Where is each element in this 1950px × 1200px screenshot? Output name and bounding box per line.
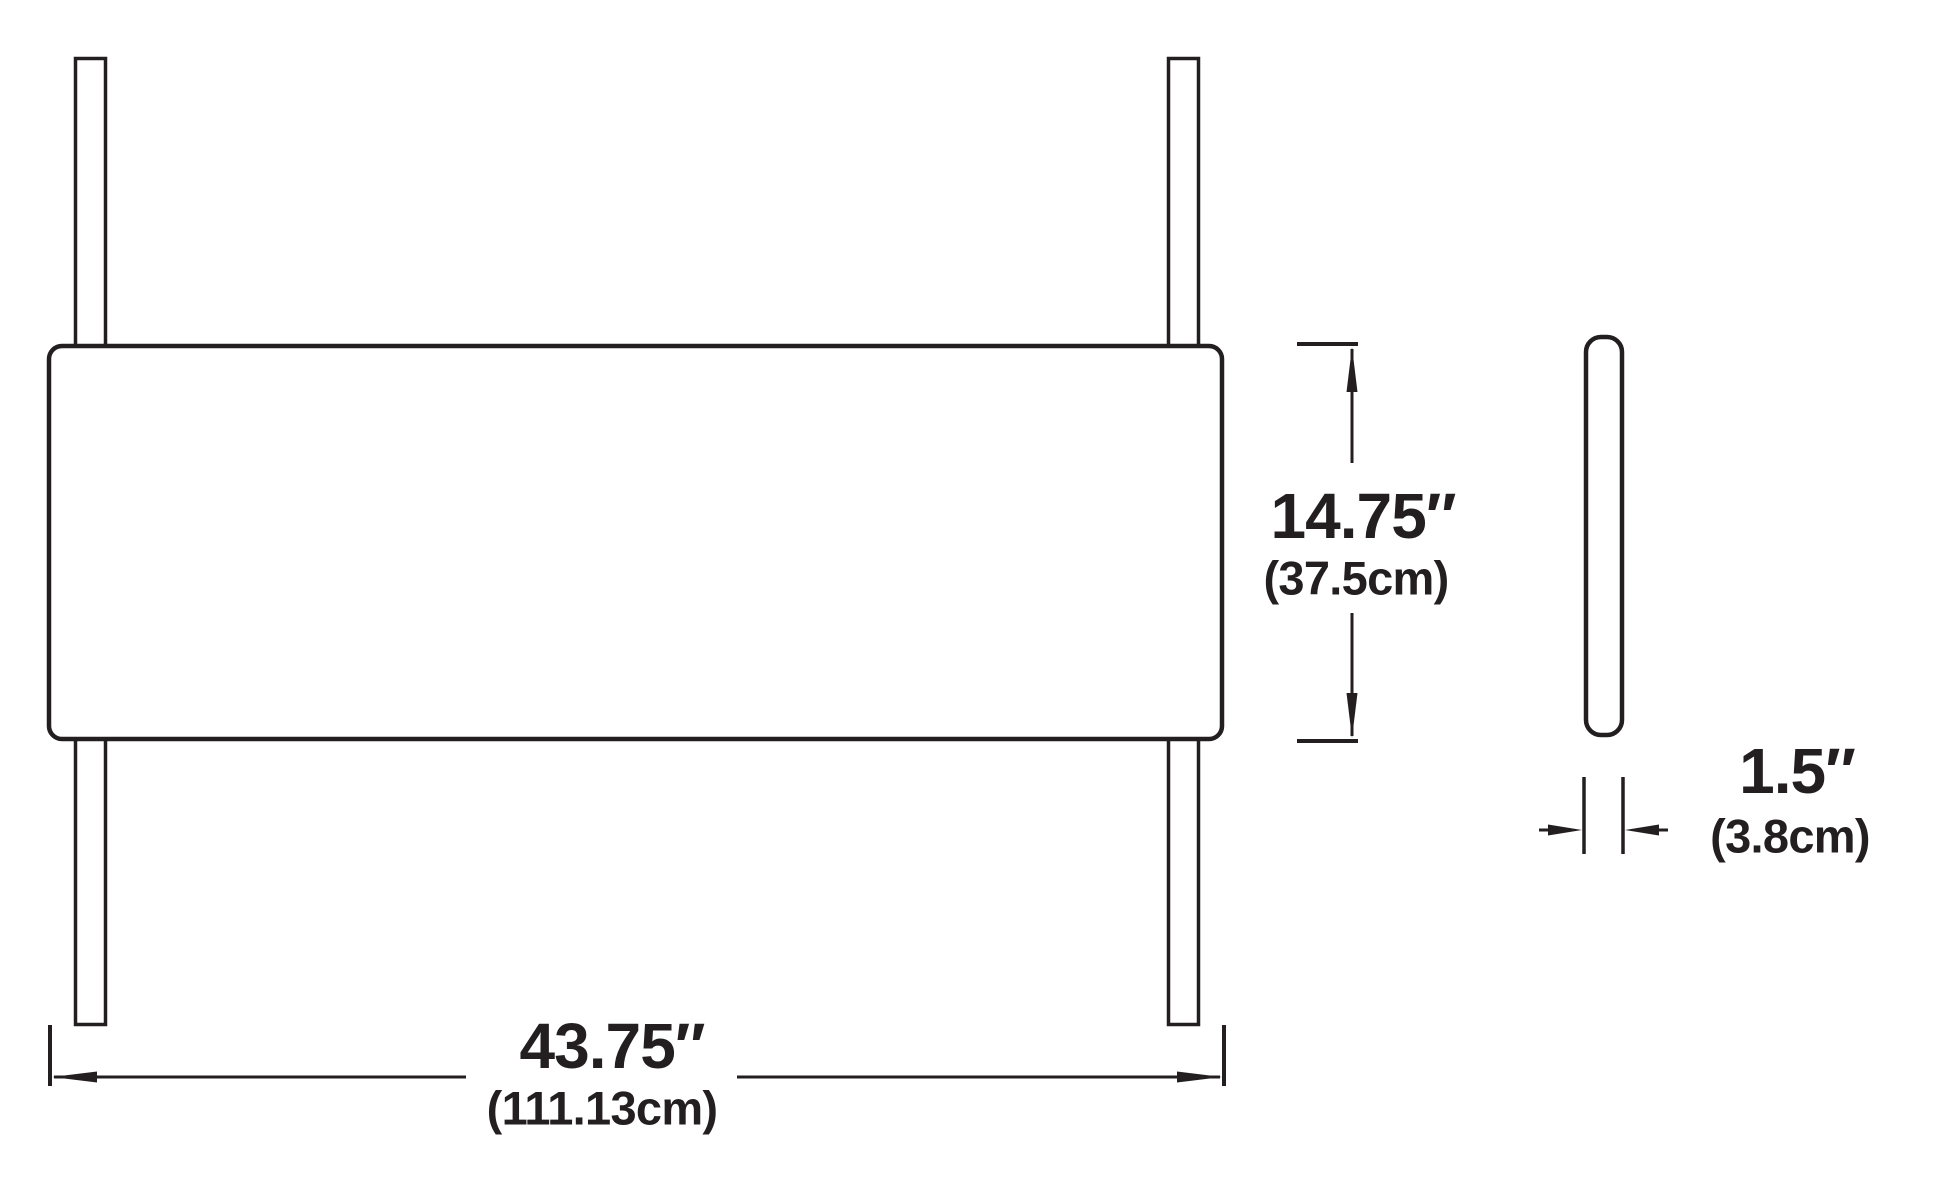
panel-side bbox=[1586, 337, 1622, 735]
arrow-up-icon bbox=[1347, 347, 1358, 392]
arrow-down-icon bbox=[1347, 693, 1358, 738]
width-dimension-label-inches: 43.75″ bbox=[519, 1014, 704, 1078]
diagram-linework bbox=[0, 0, 1950, 1200]
panel-front bbox=[49, 346, 1222, 739]
width-dimension-label-metric: (111.13cm) bbox=[487, 1085, 718, 1132]
dimension-diagram: 14.75″ (37.5cm) 43.75″ (111.13cm) 1.5″ (… bbox=[0, 0, 1950, 1200]
thickness-dimension bbox=[1539, 777, 1668, 854]
arrow-left-icon bbox=[1625, 825, 1659, 836]
side-view bbox=[1586, 337, 1622, 735]
thickness-dimension-label-metric: (3.8cm) bbox=[1710, 813, 1870, 860]
arrow-right-icon bbox=[1548, 825, 1582, 836]
height-dimension-label-inches: 14.75″ bbox=[1270, 484, 1455, 548]
height-dimension-label-metric: (37.5cm) bbox=[1263, 555, 1448, 602]
thickness-dimension-label-inches: 1.5″ bbox=[1739, 739, 1855, 803]
arrow-left-icon bbox=[52, 1072, 97, 1083]
front-view bbox=[49, 59, 1222, 1025]
arrow-right-icon bbox=[1177, 1072, 1222, 1083]
